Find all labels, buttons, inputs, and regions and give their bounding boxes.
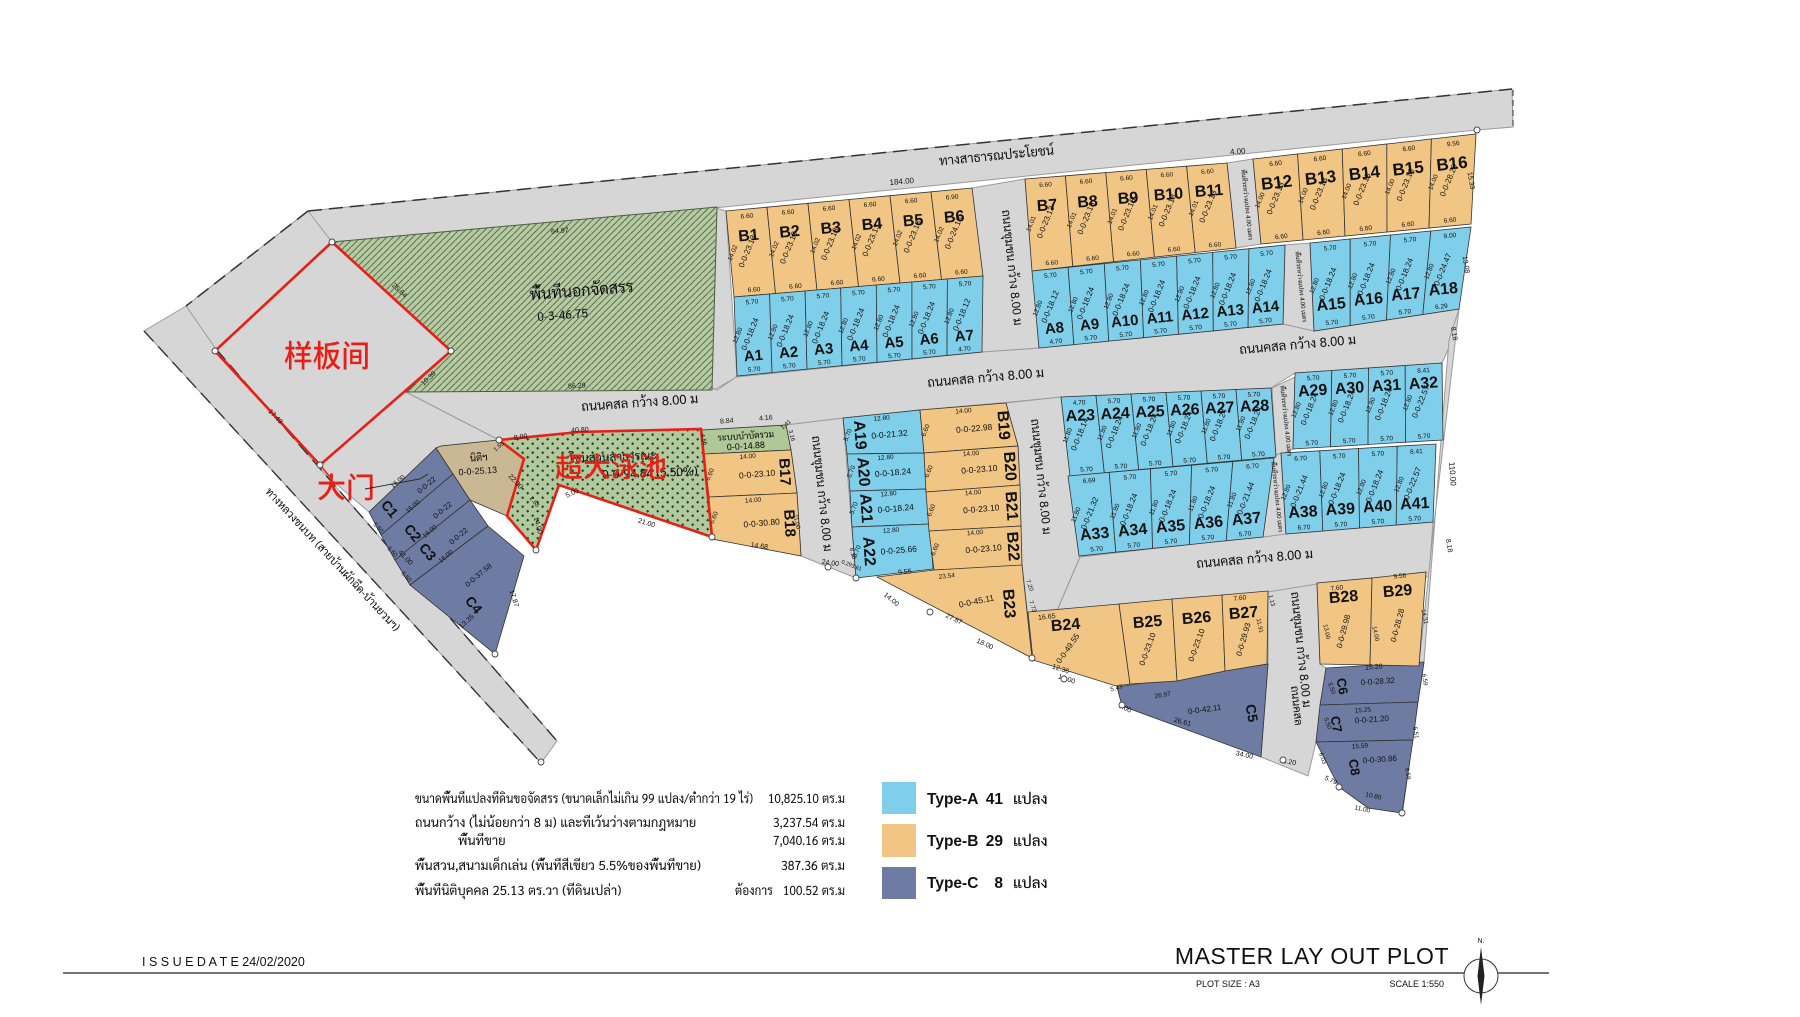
svg-text:6.60: 6.60 [1358,150,1372,158]
svg-text:5.70: 5.70 [1224,320,1238,328]
svg-text:6.70: 6.70 [1246,463,1260,471]
svg-text:40.80: 40.80 [571,427,589,435]
svg-text:5.70: 5.70 [1224,253,1238,261]
svg-text:6.60: 6.60 [830,279,844,287]
svg-text:5.70: 5.70 [1333,453,1346,461]
svg-text:5.70: 5.70 [1260,250,1274,258]
svg-text:5.70: 5.70 [1371,450,1384,458]
svg-text:6.60: 6.60 [1208,241,1222,249]
svg-text:5.70: 5.70 [1418,433,1431,441]
svg-text:B29: B29 [1382,582,1413,602]
svg-text:14.00: 14.00 [967,529,984,537]
svg-text:B27: B27 [1228,604,1259,624]
svg-text:4.70: 4.70 [958,345,972,353]
svg-text:5.70: 5.70 [1108,398,1121,406]
svg-text:12.80: 12.80 [880,490,897,498]
svg-text:6.60: 6.60 [1359,225,1373,233]
svg-text:5.70: 5.70 [1164,470,1178,478]
svg-text:5.70: 5.70 [958,280,972,288]
svg-text:5.70: 5.70 [816,292,830,300]
svg-text:4.16: 4.16 [759,414,773,422]
svg-text:6.60: 6.60 [1402,145,1416,153]
svg-text:14.00: 14.00 [745,496,762,504]
svg-text:9.00: 9.00 [1443,232,1457,240]
svg-text:5.70: 5.70 [888,352,902,360]
svg-text:6.60: 6.60 [1079,178,1093,186]
svg-text:B26: B26 [1181,609,1212,629]
svg-text:5.70: 5.70 [1044,272,1058,280]
svg-text:C5: C5 [1242,703,1261,724]
svg-text:6.60: 6.60 [789,283,803,291]
svg-text:8.41: 8.41 [1410,448,1423,456]
svg-text:15.59: 15.59 [1352,742,1369,750]
svg-text:5.70: 5.70 [923,283,937,291]
svg-text:6.60: 6.60 [1401,221,1415,229]
svg-text:5.70: 5.70 [1343,372,1356,380]
svg-text:9.55: 9.55 [898,568,912,576]
svg-text:14.00: 14.00 [739,453,756,461]
svg-text:5.70: 5.70 [1252,451,1265,459]
svg-text:5.70: 5.70 [1247,391,1260,399]
svg-text:5.70: 5.70 [1123,473,1137,481]
svg-text:6.60: 6.60 [1039,181,1053,189]
svg-text:B19: B19 [993,410,1012,441]
svg-text:5.70: 5.70 [923,349,937,357]
svg-text:5.70: 5.70 [1363,240,1377,248]
svg-text:6.60: 6.60 [822,205,836,213]
svg-text:12.80: 12.80 [877,454,894,462]
svg-text:5.70: 5.70 [1408,515,1421,523]
svg-text:6.60: 6.60 [1313,155,1327,163]
svg-text:Type-B: Type-B [927,833,978,850]
svg-text:5.70: 5.70 [1334,521,1347,529]
svg-text:5.70: 5.70 [1154,327,1168,335]
svg-text:12.80: 12.80 [873,414,890,422]
svg-text:MASTER LAY OUT PLOT: MASTER LAY OUT PLOT [1175,943,1449,969]
svg-text:5.70: 5.70 [1114,463,1127,471]
svg-text:A20: A20 [853,457,872,488]
svg-text:5.70: 5.70 [783,362,797,370]
svg-text:6.60: 6.60 [913,272,927,280]
svg-text:5.70: 5.70 [1343,437,1356,445]
svg-text:6.60: 6.60 [872,276,886,284]
svg-text:6.60: 6.60 [1045,259,1059,267]
svg-text:N.: N. [1478,938,1485,945]
svg-text:B21: B21 [1001,491,1020,522]
svg-text:5.70: 5.70 [1212,393,1225,401]
svg-text:6.90: 6.90 [946,193,960,201]
svg-text:6.60: 6.60 [955,269,969,277]
svg-text:6.60: 6.60 [1086,255,1100,263]
svg-text:C8: C8 [1346,758,1364,777]
svg-text:8.84: 8.84 [720,417,734,425]
svg-text:5.70: 5.70 [1403,236,1417,244]
svg-text:14.00: 14.00 [965,489,982,497]
svg-text:B23: B23 [999,588,1018,619]
svg-text:5.70: 5.70 [1325,319,1339,327]
svg-text:6.60: 6.60 [1275,233,1289,241]
svg-text:6.60: 6.60 [781,209,795,217]
svg-text:6.60: 6.60 [1317,229,1331,237]
svg-text:5.70: 5.70 [1084,334,1098,342]
svg-text:6.60: 6.60 [1127,250,1141,258]
svg-text:6.60: 6.60 [905,197,919,205]
svg-text:Type-C: Type-C [927,875,978,892]
svg-text:6.60: 6.60 [1160,171,1174,179]
svg-text:41: 41 [986,791,1004,808]
svg-text:29: 29 [986,833,1004,850]
svg-text:6.60: 6.60 [1443,216,1457,224]
svg-text:A22: A22 [859,536,878,567]
svg-text:5.70: 5.70 [1127,542,1141,550]
svg-text:56.29: 56.29 [568,382,586,390]
svg-text:5.70: 5.70 [1152,261,1166,269]
svg-text:5.70: 5.70 [745,298,759,306]
svg-text:5.70: 5.70 [1398,308,1412,316]
svg-text:5.70: 5.70 [818,359,832,367]
svg-text:5.70: 5.70 [852,289,866,297]
svg-text:5.70: 5.70 [1149,460,1162,468]
svg-text:B22: B22 [1003,531,1022,562]
svg-text:5.70: 5.70 [1362,314,1376,322]
svg-text:5.70: 5.70 [1164,538,1178,546]
svg-text:6.60: 6.60 [1167,246,1181,254]
svg-text:B20: B20 [1000,451,1019,482]
svg-text:5.70: 5.70 [781,295,795,303]
svg-text:8: 8 [994,875,1003,892]
svg-text:SCALE 1:550: SCALE 1:550 [1389,979,1444,989]
svg-text:5.70: 5.70 [1259,317,1273,325]
svg-text:5.70: 5.70 [1183,457,1196,465]
svg-text:5.70: 5.70 [1205,466,1219,474]
svg-text:5.70: 5.70 [748,366,762,374]
svg-text:6.70: 6.70 [1297,524,1310,532]
svg-text:6.60: 6.60 [1269,160,1283,168]
svg-text:15.25: 15.25 [1355,706,1372,714]
svg-text:5.70: 5.70 [1218,454,1231,462]
svg-text:6.29: 6.29 [1435,303,1449,311]
svg-text:I S S U E D A T E 24/02/2020: I S S U E D A T E 24/02/2020 [142,955,305,969]
svg-text:5.70: 5.70 [1324,244,1338,252]
svg-text:5.70: 5.70 [1090,545,1104,553]
svg-text:4.00: 4.00 [1230,146,1247,156]
svg-text:4.70: 4.70 [1073,399,1086,407]
svg-text:8.41: 8.41 [1417,367,1430,375]
svg-text:12.80: 12.80 [883,527,900,535]
svg-text:Type-A: Type-A [927,791,978,808]
svg-text:B17: B17 [775,458,793,486]
svg-text:5.70: 5.70 [1201,534,1215,542]
svg-text:5.70: 5.70 [1238,530,1252,538]
svg-text:5.70: 5.70 [853,356,867,364]
svg-text:5.70: 5.70 [1188,257,1202,265]
svg-text:14.00: 14.00 [963,450,980,458]
svg-text:A19: A19 [850,420,869,451]
svg-text:6.60: 6.60 [1201,168,1215,176]
svg-text:5.70: 5.70 [1080,268,1094,276]
svg-text:A21: A21 [856,493,875,524]
svg-text:5.70: 5.70 [1305,440,1318,448]
svg-text:5.70: 5.70 [1177,394,1190,402]
svg-text:B25: B25 [1132,613,1163,633]
svg-text:PLOT SIZE : A3: PLOT SIZE : A3 [1196,979,1260,989]
svg-text:5.70: 5.70 [887,286,901,294]
svg-text:5.70: 5.70 [1380,370,1393,378]
svg-text:6.60: 6.60 [740,212,754,220]
svg-text:5.70: 5.70 [1307,375,1320,383]
svg-text:6.60: 6.60 [863,201,877,209]
svg-text:7.60: 7.60 [1233,594,1247,602]
svg-text:5.70: 5.70 [1189,324,1203,332]
svg-text:6.60: 6.60 [1120,175,1134,183]
svg-text:5.70: 5.70 [1371,518,1384,526]
svg-text:110.00: 110.00 [1447,462,1458,487]
svg-text:6.70: 6.70 [1294,455,1307,463]
svg-text:4.70: 4.70 [1049,338,1063,346]
svg-text:5.70: 5.70 [1080,466,1093,474]
svg-text:5.70: 5.70 [1116,264,1130,272]
svg-text:6.69: 6.69 [1083,477,1097,485]
svg-text:9.56: 9.56 [1393,572,1407,580]
svg-text:6.60: 6.60 [747,286,761,294]
svg-text:5.70: 5.70 [1119,331,1133,339]
svg-text:5.70: 5.70 [1142,396,1155,404]
svg-text:7.60: 7.60 [1330,584,1344,592]
svg-text:5.70: 5.70 [1380,435,1393,443]
svg-text:14.00: 14.00 [955,407,972,415]
svg-text:9.56: 9.56 [1447,140,1461,148]
